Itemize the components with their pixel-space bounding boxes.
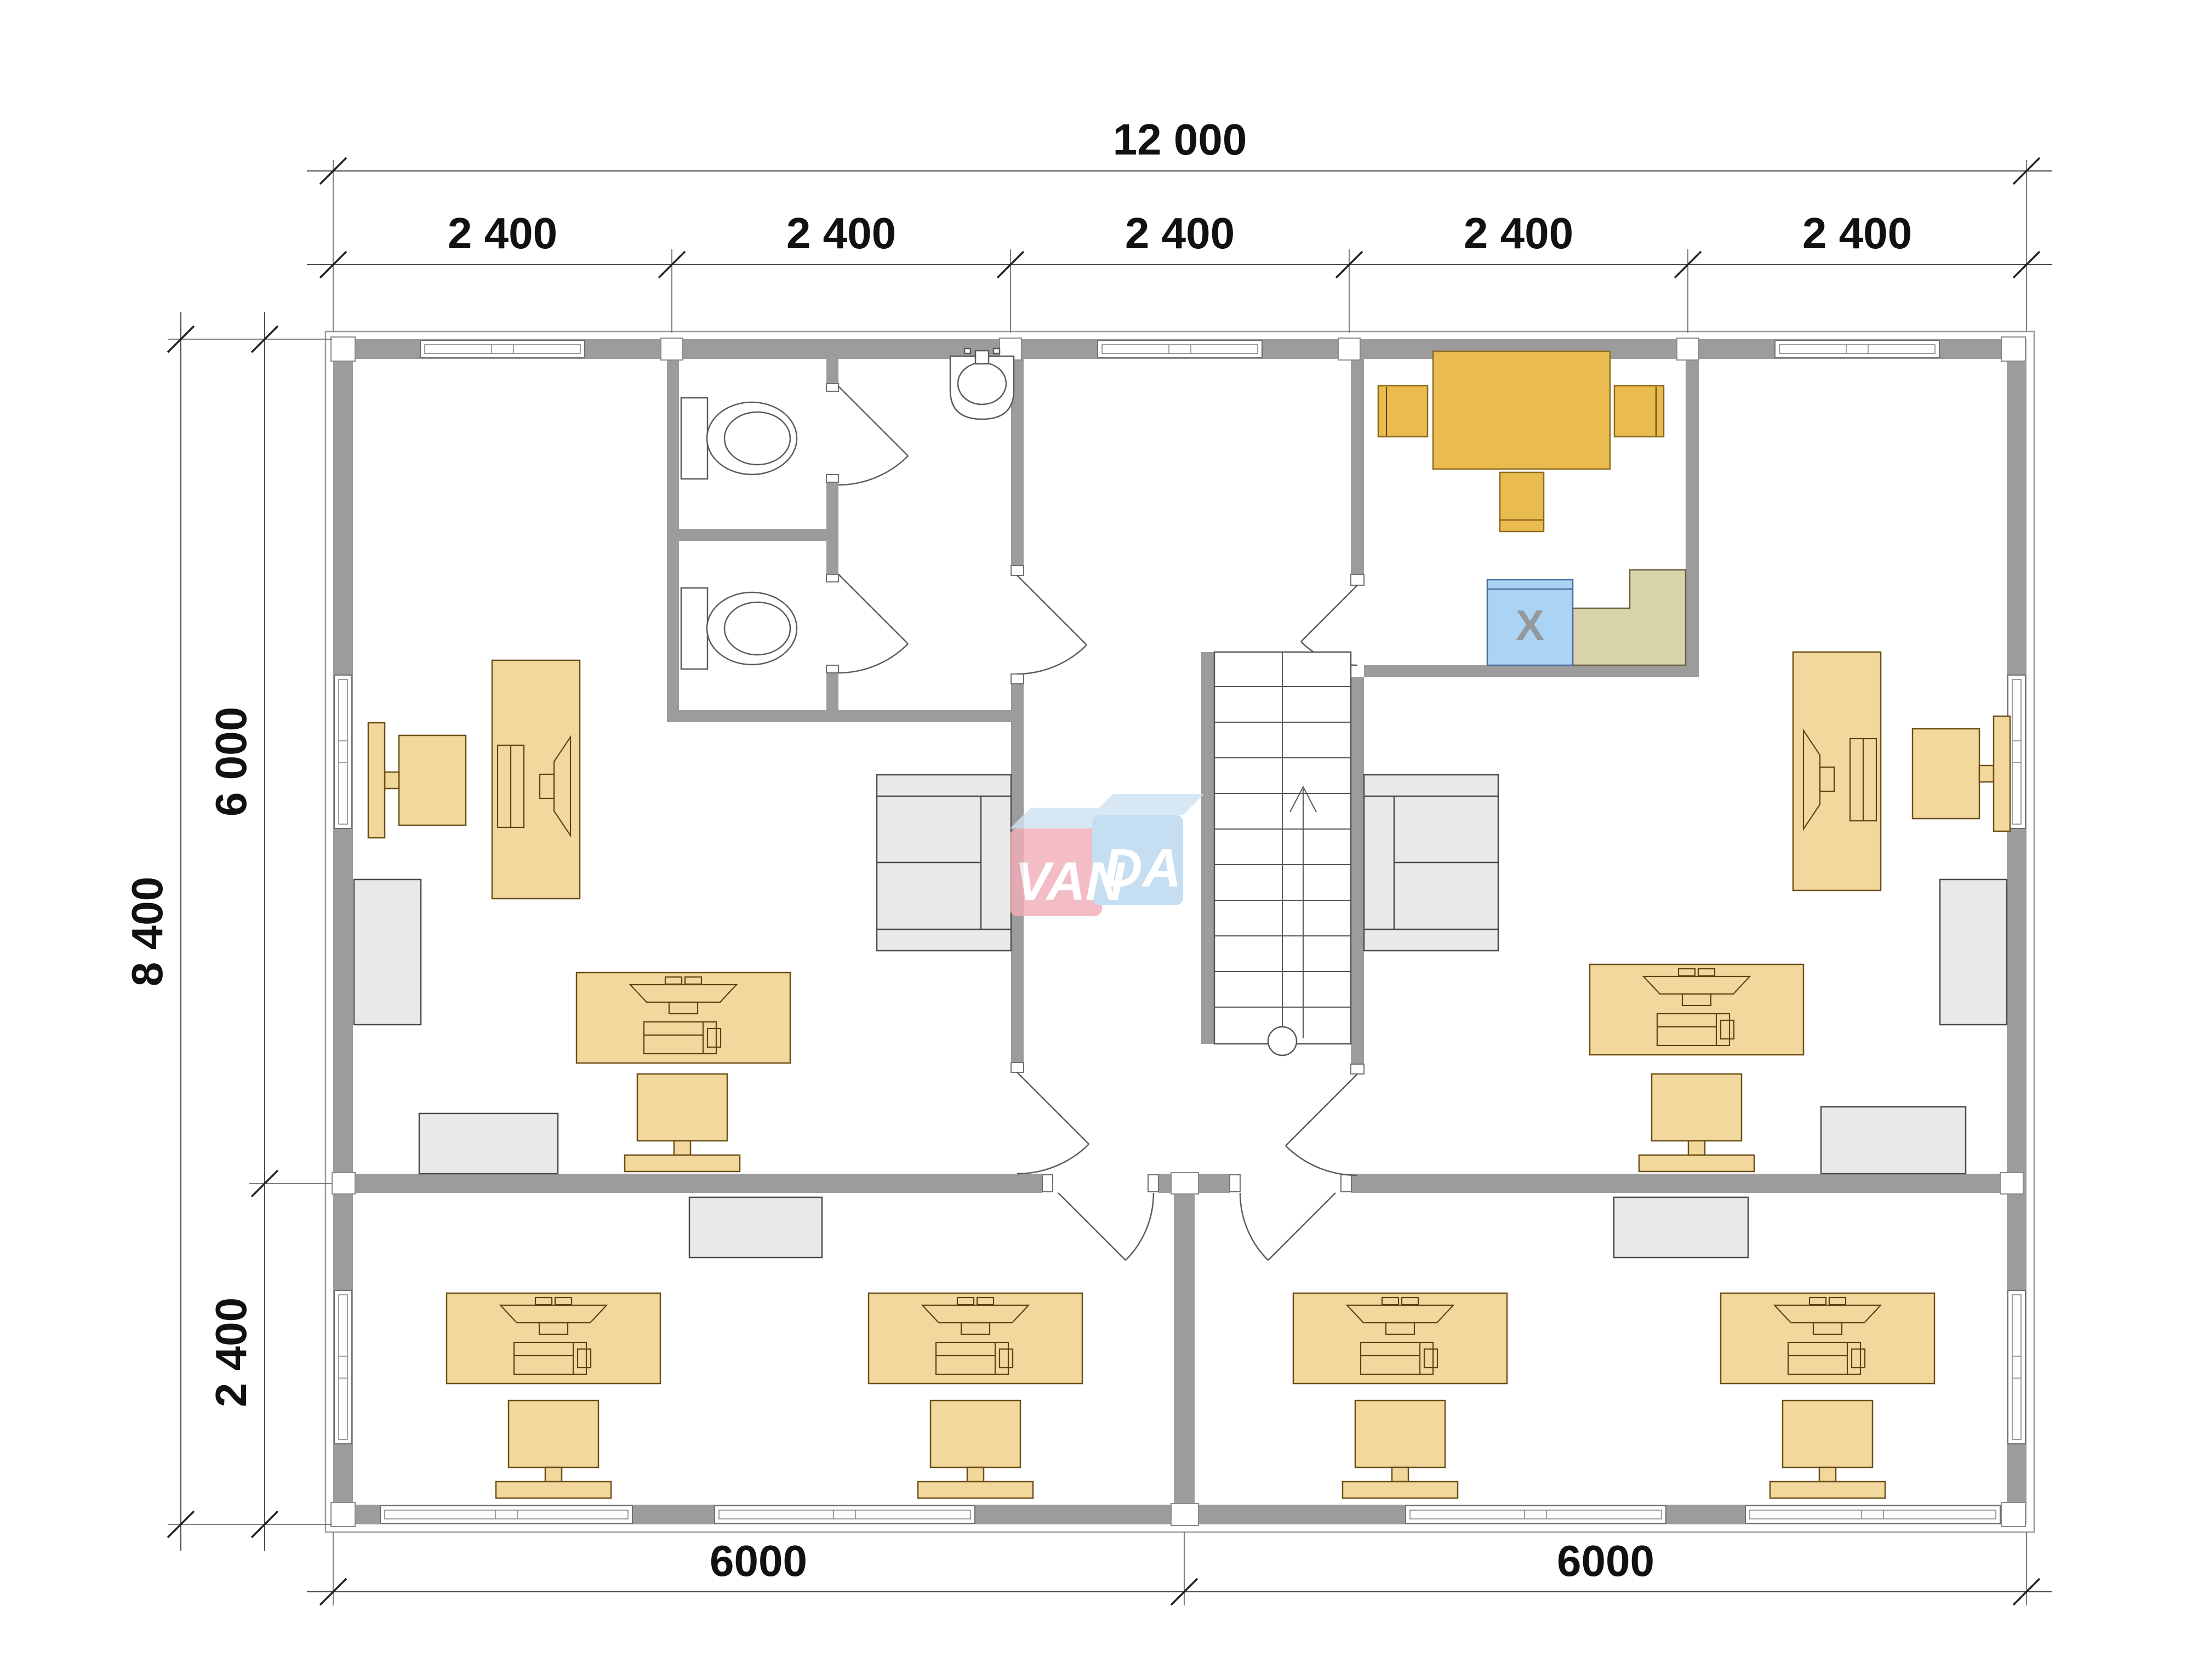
door-jamb bbox=[826, 384, 838, 391]
door-jamb bbox=[1011, 1062, 1024, 1072]
floor-plan-canvas: X bbox=[0, 0, 2192, 1680]
door-jamb bbox=[1042, 1175, 1053, 1192]
door-jamb bbox=[1011, 565, 1024, 575]
toilet-block-left-wall bbox=[667, 359, 679, 722]
office-chair bbox=[625, 1074, 740, 1172]
window bbox=[1745, 1506, 2000, 1523]
office-chair bbox=[1913, 716, 2010, 831]
toilet-corridor-wall bbox=[826, 673, 838, 710]
watermark-text-da: DA bbox=[1104, 838, 1181, 898]
toilet-corridor-wall bbox=[826, 482, 838, 574]
column-marker bbox=[1171, 1173, 1198, 1194]
dimension-top-total: 12 000 bbox=[307, 115, 2052, 184]
column-marker bbox=[2000, 1173, 2023, 1194]
door-swing bbox=[838, 574, 908, 673]
kitchen-counter-edge bbox=[1574, 571, 1625, 604]
window bbox=[1406, 1506, 1666, 1523]
door-jamb bbox=[1148, 1175, 1158, 1192]
wall-cabinet bbox=[1940, 879, 2007, 1025]
column-marker bbox=[332, 1173, 355, 1194]
middle-wall-right-segment bbox=[1351, 1174, 2027, 1193]
hall-right-wall bbox=[1351, 677, 1364, 1064]
dimension-top-bays: 2 400 2 400 2 400 2 400 2 400 bbox=[307, 209, 2052, 278]
dim-label: 2 400 bbox=[1802, 209, 1912, 258]
door-jamb bbox=[1351, 574, 1364, 585]
door-jamb bbox=[826, 665, 838, 673]
window bbox=[420, 340, 585, 358]
door-swing bbox=[1017, 1072, 1089, 1174]
dimension-bottom: 6000 6000 bbox=[307, 1536, 2052, 1605]
dishwasher-x-label: X bbox=[1516, 601, 1544, 649]
toilet-stall-divider-wall bbox=[679, 529, 826, 541]
dim-label: 2 400 bbox=[448, 209, 557, 258]
toilet-block-bottom-wall bbox=[667, 710, 1024, 722]
door-swing bbox=[1017, 575, 1087, 674]
office-chair bbox=[496, 1401, 611, 1498]
desk bbox=[1590, 964, 1803, 1055]
dim-label: 6000 bbox=[1557, 1536, 1654, 1585]
meeting-room-right-wall bbox=[1686, 359, 1699, 677]
door-jamb bbox=[826, 475, 838, 482]
desk bbox=[1293, 1293, 1507, 1384]
office-chair bbox=[1770, 1401, 1885, 1498]
office-chair bbox=[918, 1401, 1033, 1498]
toilet-block-right-wall-stub bbox=[1011, 684, 1024, 710]
door-jamb bbox=[1351, 1064, 1364, 1074]
wall-cabinet bbox=[689, 1197, 822, 1258]
desk bbox=[576, 973, 790, 1063]
dim-label: 12 000 bbox=[1113, 115, 1247, 164]
column-marker bbox=[331, 1502, 355, 1527]
sofa bbox=[877, 775, 1011, 951]
column-marker bbox=[1338, 338, 1360, 360]
meeting-room-left-wall bbox=[1351, 359, 1364, 574]
column-marker bbox=[661, 338, 683, 360]
column-marker bbox=[2001, 1502, 2025, 1527]
column-marker bbox=[1677, 338, 1699, 360]
door-swing bbox=[1240, 1193, 1335, 1260]
staircase bbox=[1214, 652, 1351, 1055]
window bbox=[380, 1506, 632, 1523]
toilet-corridor-wall bbox=[826, 359, 838, 384]
sink bbox=[950, 348, 1014, 419]
door-swing bbox=[1286, 1074, 1357, 1175]
meeting-chair bbox=[1500, 472, 1544, 532]
desk bbox=[492, 660, 580, 899]
wall-cabinet bbox=[419, 1113, 558, 1174]
stair-side-wall bbox=[1201, 652, 1214, 1044]
door-jamb bbox=[826, 574, 838, 582]
column-marker bbox=[1171, 1504, 1198, 1525]
column-marker bbox=[331, 337, 355, 361]
toilet bbox=[681, 398, 797, 479]
dim-label: 2 400 bbox=[786, 209, 896, 258]
dim-label: 2 400 bbox=[1464, 209, 1573, 258]
door-swing bbox=[838, 386, 908, 485]
dim-label: 6000 bbox=[710, 1536, 807, 1585]
dim-label: 2 400 bbox=[1125, 209, 1235, 258]
desk bbox=[1793, 652, 1881, 890]
dim-label: 6 000 bbox=[207, 707, 255, 816]
meeting-room-furniture: X bbox=[1378, 351, 1686, 665]
office-chair bbox=[1639, 1074, 1754, 1172]
door-jamb bbox=[1341, 1175, 1351, 1192]
dimension-left-total: 8 400 bbox=[123, 312, 194, 1551]
desk bbox=[869, 1293, 1082, 1384]
wall-cabinet bbox=[1821, 1107, 1966, 1174]
door-jamb bbox=[1230, 1175, 1240, 1192]
office-chair bbox=[368, 723, 466, 838]
desk bbox=[447, 1293, 660, 1384]
window bbox=[2008, 1290, 2025, 1444]
meeting-room-bottom-wall bbox=[1364, 665, 1686, 677]
window bbox=[1098, 340, 1262, 358]
middle-wall-left-segment bbox=[333, 1174, 1042, 1193]
watermark: VAN DA bbox=[1010, 794, 1204, 916]
meeting-table bbox=[1433, 351, 1610, 469]
window bbox=[715, 1506, 975, 1523]
wall-cabinet bbox=[1614, 1197, 1748, 1258]
window bbox=[334, 675, 352, 828]
kitchen-counter bbox=[1573, 570, 1686, 665]
column-marker bbox=[2001, 337, 2025, 361]
desk bbox=[1721, 1293, 1934, 1384]
door-jamb bbox=[1011, 674, 1024, 684]
meeting-chair bbox=[1378, 386, 1428, 437]
dim-label: 2 400 bbox=[207, 1298, 255, 1407]
window bbox=[334, 1290, 352, 1444]
dim-label: 8 400 bbox=[123, 877, 172, 986]
sofa bbox=[1364, 775, 1498, 951]
dimension-left-split: 6 000 2 400 bbox=[207, 312, 278, 1551]
toilet bbox=[681, 588, 797, 669]
stair-start-post bbox=[1268, 1027, 1297, 1055]
wall-cabinet bbox=[354, 879, 421, 1025]
bottom-rooms-divider-wall bbox=[1174, 1193, 1195, 1505]
door-swing bbox=[1058, 1193, 1154, 1260]
window bbox=[1775, 340, 1939, 358]
dishwasher: X bbox=[1487, 580, 1573, 665]
office-chair bbox=[1343, 1401, 1458, 1498]
meeting-chair bbox=[1614, 386, 1664, 437]
